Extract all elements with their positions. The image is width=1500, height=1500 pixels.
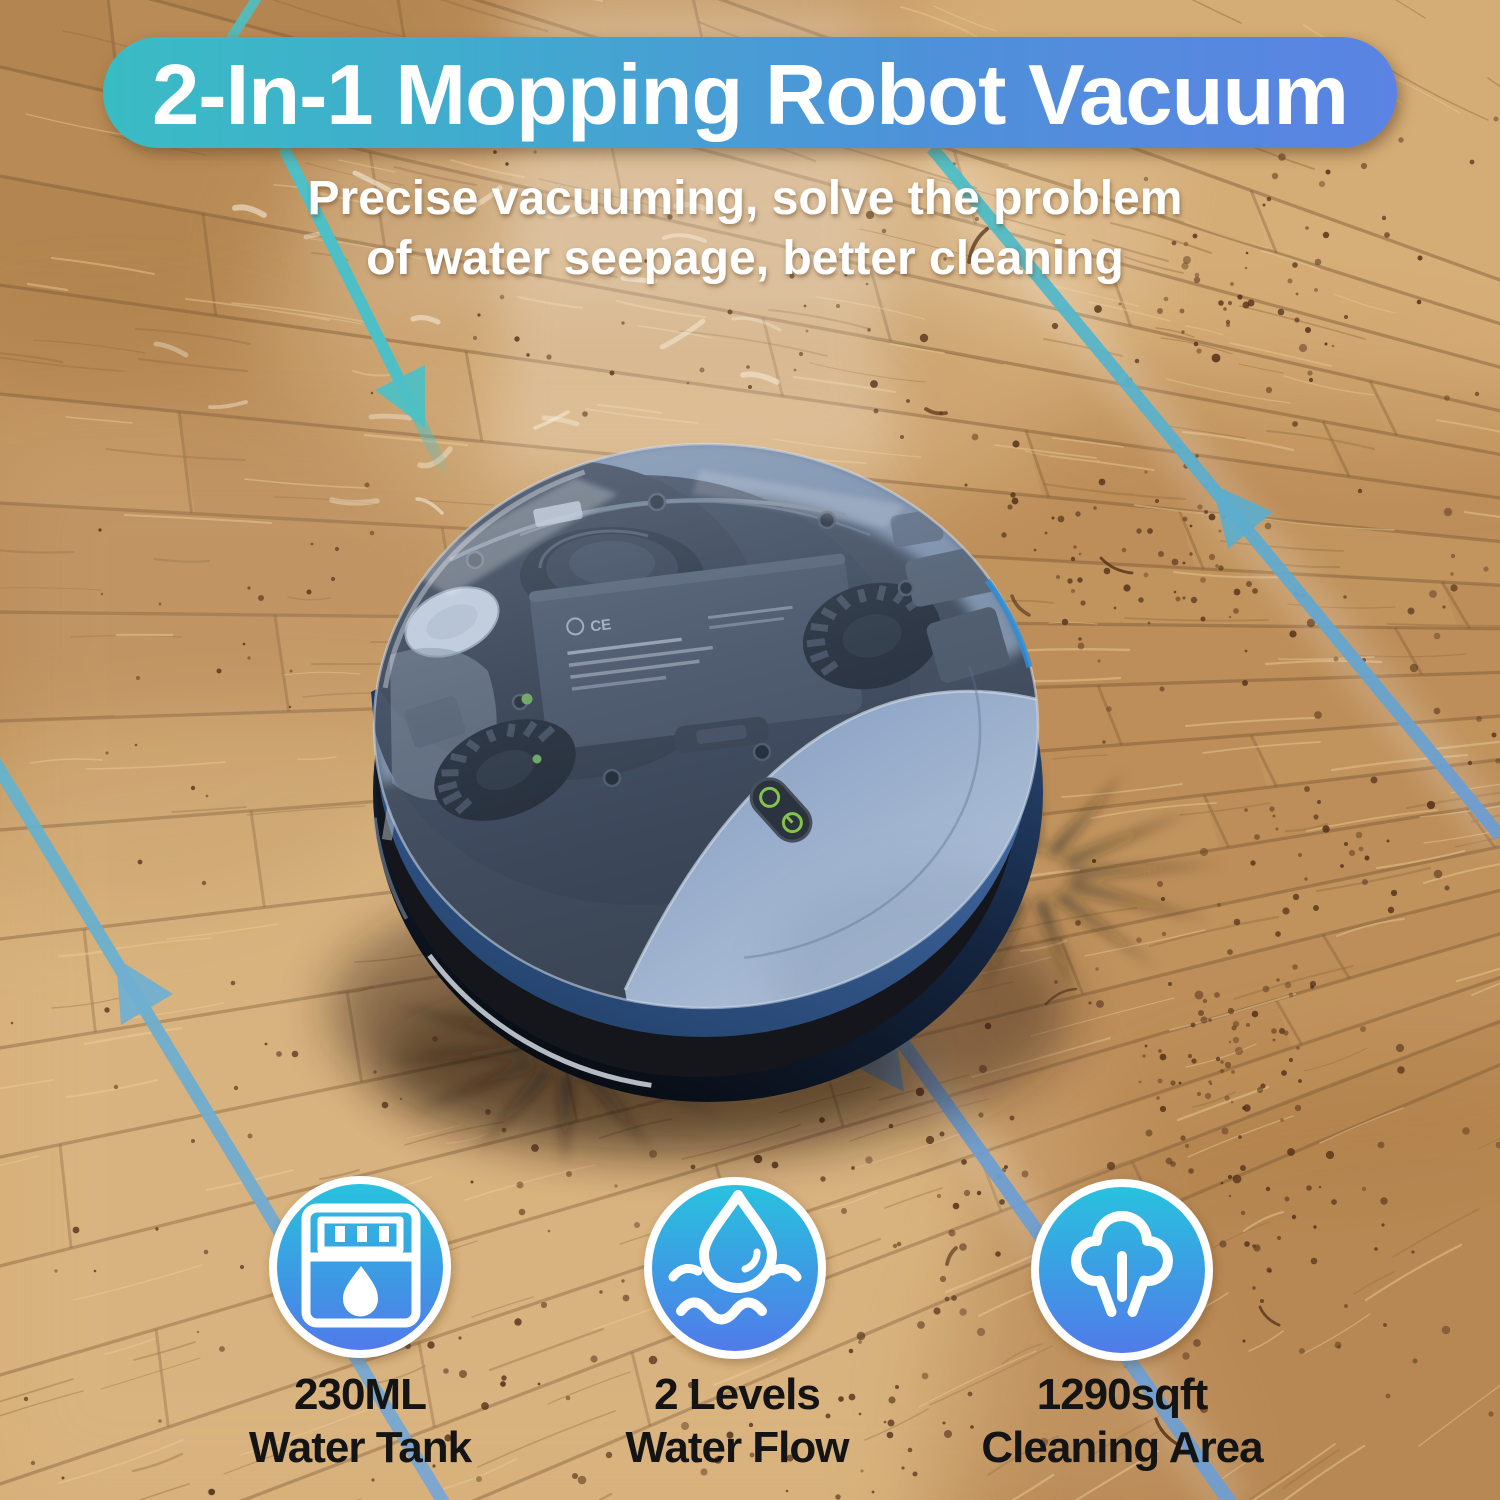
svg-text:230ML: 230ML — [294, 1370, 426, 1419]
svg-text:Precise vacuuming, solve the p: Precise vacuuming, solve the problem — [308, 172, 1183, 225]
svg-text:of water seepage, better clean: of water seepage, better cleaning — [366, 232, 1124, 285]
svg-text:Cleaning Area: Cleaning Area — [981, 1423, 1264, 1472]
svg-text:1290sqft: 1290sqft — [1037, 1370, 1209, 1419]
svg-text:Water Flow: Water Flow — [625, 1423, 850, 1472]
svg-text:2-In-1 Mopping Robot Vacuum: 2-In-1 Mopping Robot Vacuum — [152, 48, 1348, 143]
svg-text:2 Levels: 2 Levels — [654, 1370, 820, 1419]
svg-text:Water Tank: Water Tank — [249, 1423, 473, 1472]
